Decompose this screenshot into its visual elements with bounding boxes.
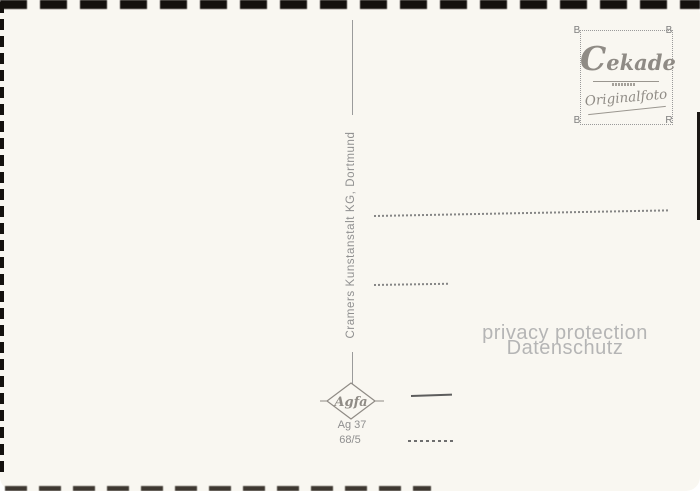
privacy-watermark: privacy protection Datenschutz xyxy=(468,326,662,356)
stamp-corner-mark-tl: B xyxy=(572,25,582,36)
print-code-line2: 68/5 xyxy=(318,434,382,446)
divider-line-upper xyxy=(352,20,353,115)
cekade-logo: Cekade xyxy=(580,44,672,78)
agfa-diamond-logo: Agfa xyxy=(320,382,384,420)
cekade-underline-hatch xyxy=(612,83,636,86)
stamp-corner-mark-br: R xyxy=(664,115,674,126)
stamp-corner-mark-tr: B xyxy=(664,25,674,36)
stamp-corner-mark-bl: B xyxy=(572,115,582,126)
dotted-mark-line xyxy=(408,440,453,442)
print-code-line1: Ag 37 xyxy=(320,419,384,431)
publisher-imprint: Cramers Kunstanstalt KG, Dortmund xyxy=(345,118,361,352)
cekade-underline xyxy=(593,81,659,82)
divider-line-lower xyxy=(352,352,353,384)
agfa-brand-text: Agfa xyxy=(332,395,367,410)
